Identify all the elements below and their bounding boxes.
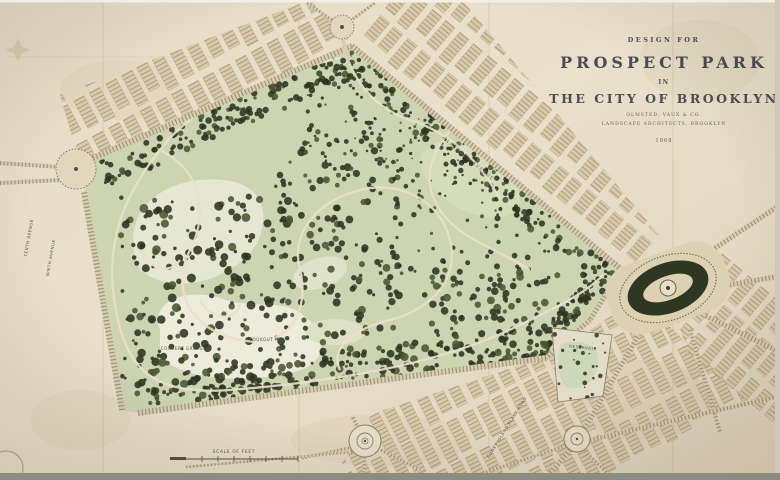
park-circle (349, 425, 381, 457)
photo-edge-bottom (0, 473, 780, 480)
lookout-hill-label: LOOKOUT HILL (250, 337, 287, 342)
reservoir-parcel: RESERVOIR (552, 328, 612, 402)
prospect-park-map: RESERVOIR SCALE OF FEET (0, 0, 780, 480)
photo-edge-right (775, 0, 780, 480)
title-preposition: IN (658, 79, 669, 86)
title-firm-role: LANDSCAPE ARCHITECTS, BROOKLYN (602, 121, 727, 127)
title-firm: OLMSTED, VAUX & CO. (626, 112, 701, 118)
map-photo: RESERVOIR SCALE OF FEET (0, 0, 780, 480)
concert-grove-label: CONCERT GROVE (161, 346, 203, 351)
southeast-circle (564, 426, 590, 452)
photo-edge-top (0, 0, 780, 3)
title-city: THE CITY OF BROOKLYN (549, 91, 778, 106)
title-park-name: PROSPECT PARK (560, 53, 768, 72)
title-kicker: DESIGN FOR (628, 36, 701, 44)
title-year: 1868 (655, 138, 672, 144)
scale-caption: SCALE OF FEET (213, 449, 255, 454)
